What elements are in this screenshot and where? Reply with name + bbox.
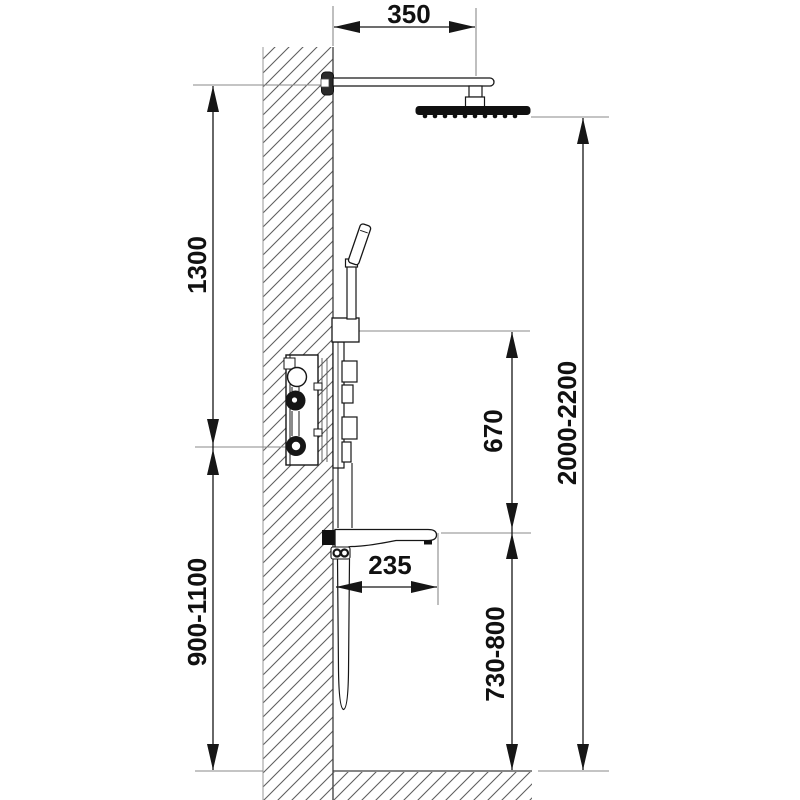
technical-drawing — [0, 0, 800, 800]
installation-diagram: 350 1300 900-1100 670 2000-2200 235 730-… — [0, 0, 800, 800]
panel-handle-1 — [342, 361, 357, 382]
hand-shower — [332, 223, 371, 342]
spout-aerator — [424, 541, 432, 545]
dim-head-height: 2000-2200 — [552, 343, 582, 503]
hand-shower-holder — [332, 318, 359, 342]
dim-mixer-to-spout: 670 — [478, 351, 508, 511]
dim-spout-height: 730-800 — [480, 574, 510, 734]
panel-handle-2 — [342, 385, 353, 403]
mixer-top-port — [288, 368, 307, 387]
dim-mixer-height: 900-1100 — [182, 532, 212, 692]
dim-arm-projection: 350 — [359, 0, 459, 28]
hand-shower-handle — [348, 223, 372, 265]
floor-hatch — [333, 771, 532, 800]
panel-handle-3 — [342, 417, 357, 439]
shower-panel — [333, 342, 357, 468]
shower-arm — [321, 72, 494, 95]
shower-head — [416, 86, 530, 118]
dim-spout-projection: 235 — [340, 551, 440, 579]
panel-handle-4 — [342, 442, 351, 462]
extension-lines — [193, 6, 609, 771]
dim-arm-to-mixer: 1300 — [182, 185, 212, 345]
